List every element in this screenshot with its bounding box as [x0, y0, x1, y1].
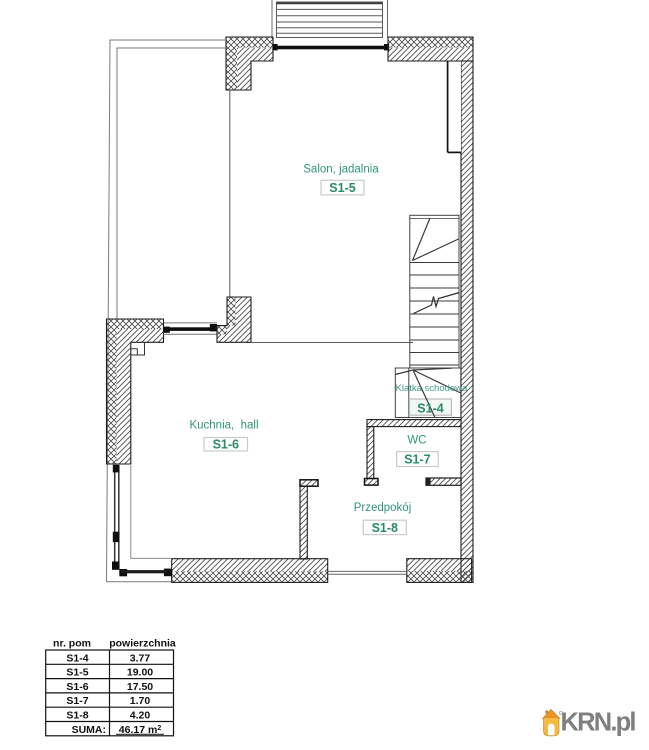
svg-text:Kuchnia, hall: Kuchnia, hall — [189, 419, 258, 431]
svg-text:4.20: 4.20 — [130, 710, 151, 722]
svg-text:WC: WC — [407, 435, 426, 447]
svg-text:S1-6: S1-6 — [213, 438, 239, 452]
svg-text:Klatka schodowa: Klatka schodowa — [396, 383, 469, 394]
svg-text:S1-5: S1-5 — [66, 667, 88, 679]
svg-text:SUMA:: SUMA: — [72, 724, 106, 736]
svg-text:S1-4: S1-4 — [417, 401, 443, 415]
svg-text:nr. pom: nr. pom — [53, 638, 91, 650]
svg-text:S1-7: S1-7 — [404, 453, 430, 467]
svg-text:powierzchnia: powierzchnia — [109, 638, 176, 650]
svg-text:17.50: 17.50 — [127, 681, 153, 693]
svg-text:3.77: 3.77 — [130, 652, 151, 664]
svg-text:S1-6: S1-6 — [66, 681, 88, 693]
svg-text:1.70: 1.70 — [130, 695, 151, 707]
svg-text:19.00: 19.00 — [127, 667, 153, 679]
svg-text:KRN.pl: KRN.pl — [561, 709, 636, 737]
svg-text:S1-4: S1-4 — [66, 652, 88, 664]
svg-text:S1-5: S1-5 — [329, 181, 355, 195]
svg-text:S1-8: S1-8 — [372, 521, 398, 535]
svg-text:Przedpokój: Przedpokój — [354, 502, 412, 514]
svg-text:S1-8: S1-8 — [66, 710, 88, 722]
svg-text:Salon, jadalnia: Salon, jadalnia — [303, 163, 379, 175]
svg-text:S1-7: S1-7 — [66, 695, 88, 707]
